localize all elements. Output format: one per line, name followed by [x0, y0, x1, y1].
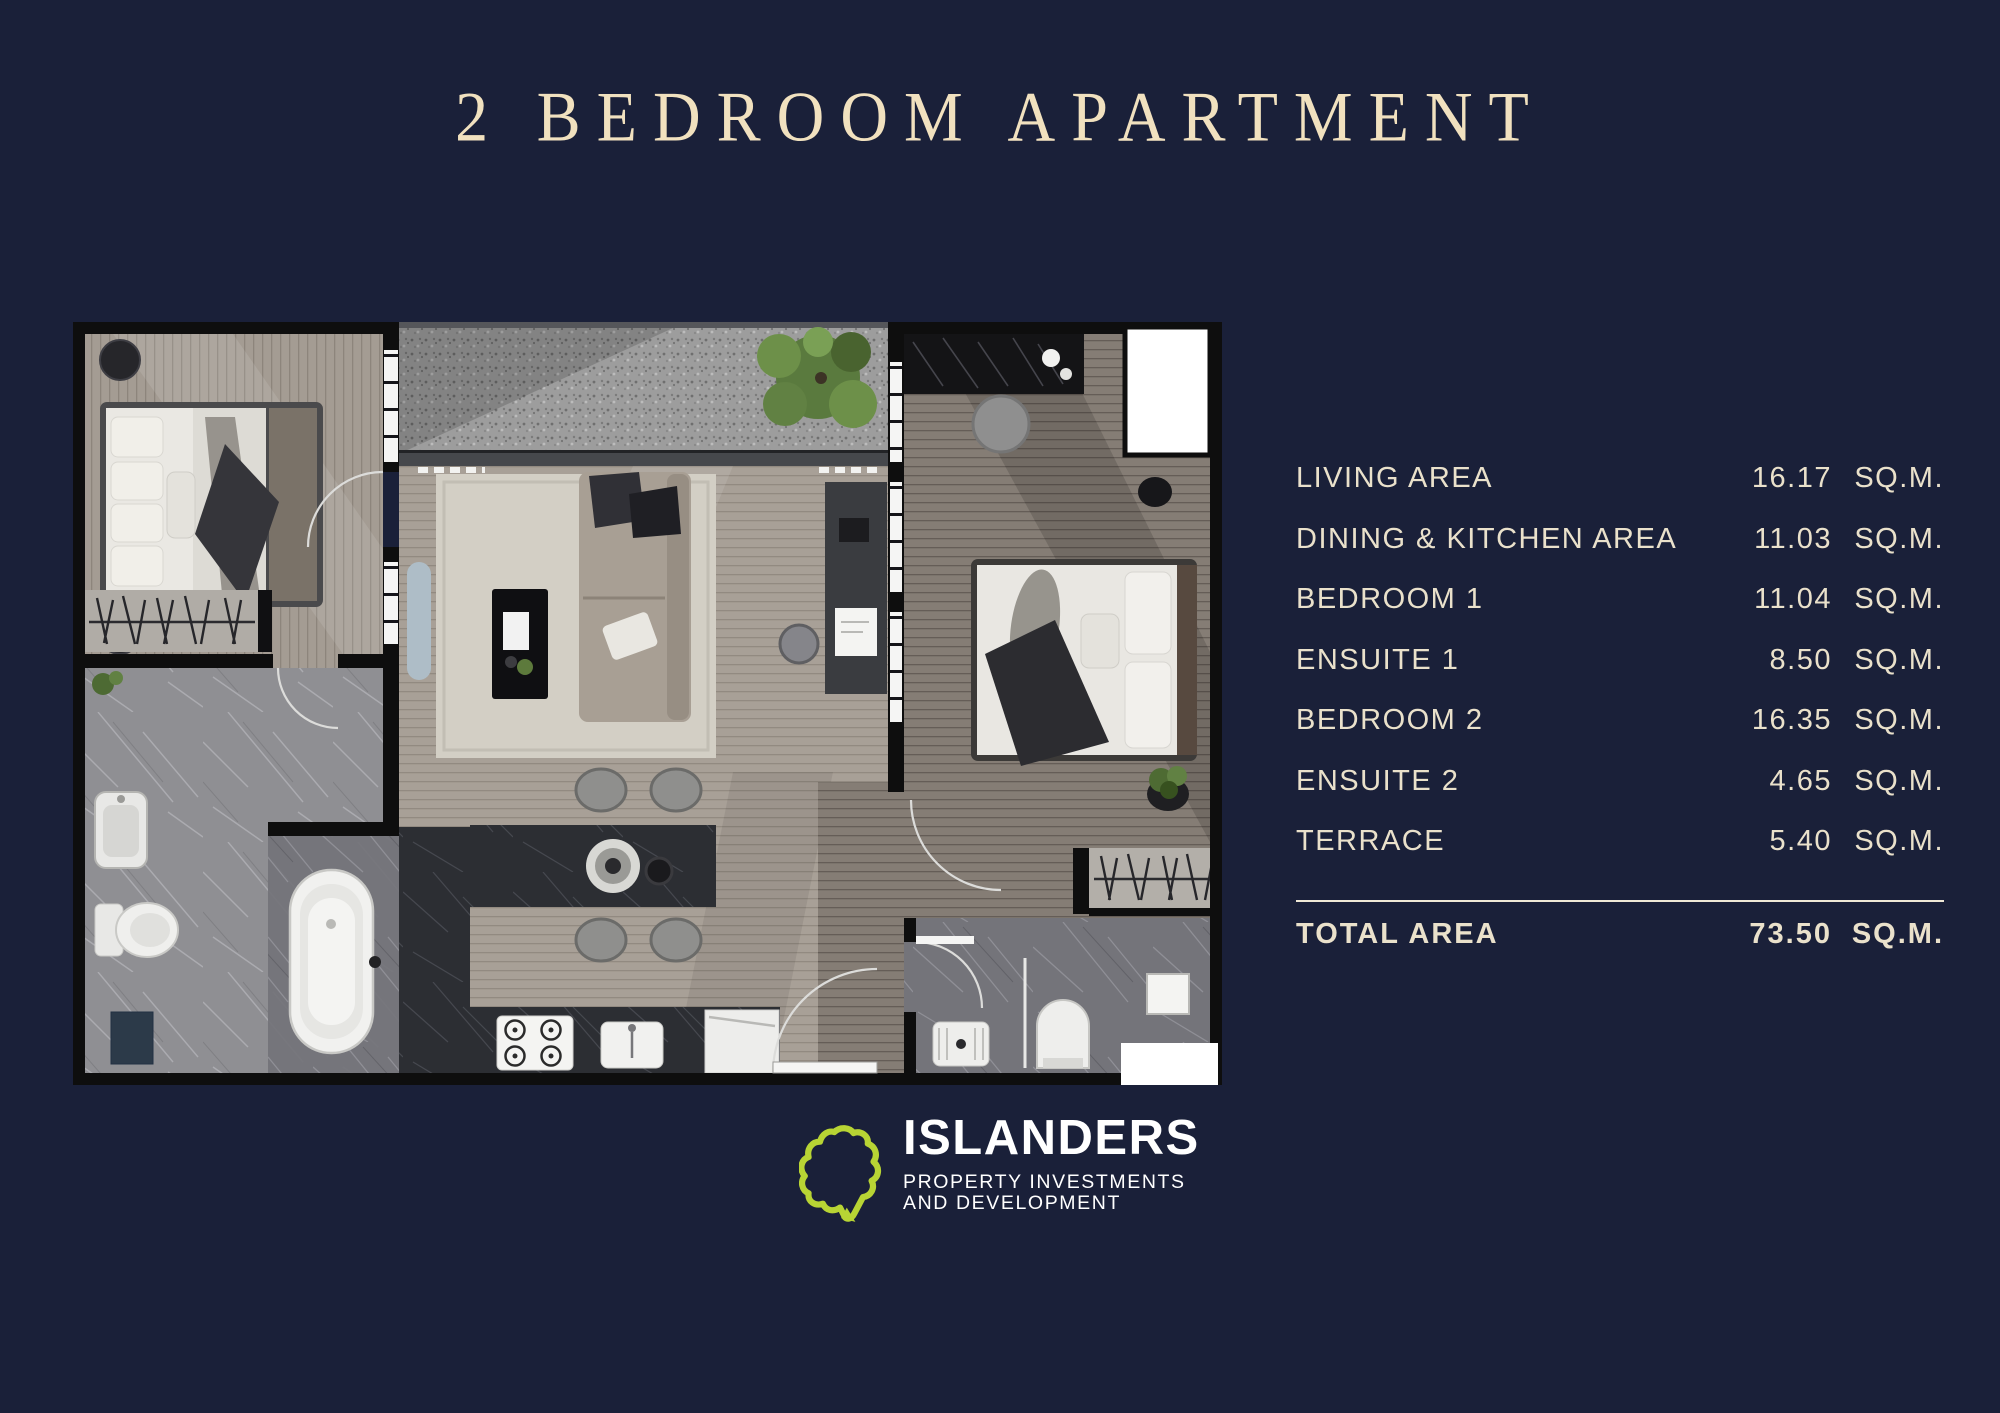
row-label: DINING & KITCHEN AREA: [1296, 523, 1702, 556]
total-row: TOTAL AREA 73.50 SQ.M.: [1296, 918, 1944, 979]
bathtub: [290, 870, 381, 1053]
hallway-floor: [818, 782, 904, 1073]
desk-chair: [780, 625, 818, 663]
logo-text: ISLANDERS PROPERTY INVESTMENTS AND DEVEL…: [903, 1114, 1200, 1214]
bedroom-2-closet: [1073, 848, 1222, 916]
row-value: 16.17: [1702, 462, 1832, 495]
coffee-table: [492, 589, 548, 699]
bedroom-1-closet: [85, 590, 272, 652]
logo-name: ISLANDERS: [903, 1114, 1200, 1163]
floor-plan-image: [73, 322, 1222, 1085]
table-row: LIVING AREA 16.17 SQ.M.: [1296, 462, 1944, 523]
row-unit: SQ.M.: [1832, 825, 1944, 858]
table-row: BEDROOM 2 16.35 SQ.M.: [1296, 704, 1944, 765]
table-row: BEDROOM 1 11.04 SQ.M.: [1296, 583, 1944, 644]
row-label: ENSUITE 2: [1296, 765, 1702, 798]
total-unit: SQ.M.: [1832, 918, 1944, 951]
table-row: ENSUITE 2 4.65 SQ.M.: [1296, 765, 1944, 826]
sofa: [579, 472, 691, 722]
logo-tagline: PROPERTY INVESTMENTS AND DEVELOPMENT: [903, 1172, 1200, 1214]
dining-chair: [576, 919, 626, 961]
plant: [1147, 766, 1189, 811]
row-value: 5.40: [1702, 825, 1832, 858]
table-row: TERRACE 5.40 SQ.M.: [1296, 825, 1944, 886]
dining-chair: [651, 919, 701, 961]
ensuite-2-door-leaf: [916, 936, 974, 944]
round-rug: [973, 396, 1029, 452]
island-outline-icon: [799, 1122, 885, 1232]
row-value: 11.03: [1702, 523, 1832, 556]
console: [407, 562, 431, 680]
row-label: ENSUITE 1: [1296, 644, 1702, 677]
row-label: LIVING AREA: [1296, 462, 1702, 495]
row-unit: SQ.M.: [1832, 704, 1944, 737]
vanity-counter: [904, 334, 1084, 394]
logo-tagline-line1: PROPERTY INVESTMENTS: [903, 1172, 1200, 1193]
row-unit: SQ.M.: [1832, 523, 1944, 556]
bedroom-2-bed: [971, 559, 1197, 766]
exterior-block: [1121, 1043, 1218, 1085]
dining-chair: [651, 769, 701, 811]
sink-2: [933, 1022, 989, 1066]
table-row: DINING & KITCHEN AREA 11.03 SQ.M.: [1296, 523, 1944, 584]
shower-tray: [1147, 974, 1189, 1014]
row-value: 11.04: [1702, 583, 1832, 616]
total-label: TOTAL AREA: [1296, 918, 1702, 951]
logo-tagline-line2: AND DEVELOPMENT: [903, 1193, 1200, 1214]
islanders-logo: ISLANDERS PROPERTY INVESTMENTS AND DEVEL…: [799, 1114, 1200, 1232]
pouf: [1138, 477, 1172, 507]
toilet: [95, 903, 178, 957]
toilet-2: [1037, 1000, 1089, 1068]
area-table: LIVING AREA 16.17 SQ.M. DINING & KITCHEN…: [1296, 462, 1944, 978]
row-label: BEDROOM 2: [1296, 704, 1702, 737]
dining-chair: [576, 769, 626, 811]
row-unit: SQ.M.: [1832, 765, 1944, 798]
row-value: 4.65: [1702, 765, 1832, 798]
row-value: 8.50: [1702, 644, 1832, 677]
floor-plan-svg: [73, 322, 1222, 1085]
table-divider: [1296, 900, 1944, 902]
page-title: 2 BEDROOM APARTMENT: [0, 77, 2000, 159]
row-unit: SQ.M.: [1832, 462, 1944, 495]
row-label: TERRACE: [1296, 825, 1702, 858]
stove: [497, 1016, 573, 1070]
entry-door-leaf: [773, 1062, 877, 1073]
table-row: ENSUITE 1 8.50 SQ.M.: [1296, 644, 1944, 705]
sink: [95, 792, 147, 868]
row-label: BEDROOM 1: [1296, 583, 1702, 616]
bath-mat: [111, 1012, 153, 1064]
terrace-tree: [757, 327, 877, 428]
total-value: 73.50: [1702, 918, 1832, 951]
kitchen-sink: [601, 1022, 663, 1068]
row-unit: SQ.M.: [1832, 644, 1944, 677]
row-value: 16.35: [1702, 704, 1832, 737]
fridge: [705, 1010, 779, 1073]
kitchen-cabinet: [399, 827, 470, 1073]
row-unit: SQ.M.: [1832, 583, 1944, 616]
shaft-block: [1125, 327, 1210, 455]
nightstand: [100, 340, 140, 380]
